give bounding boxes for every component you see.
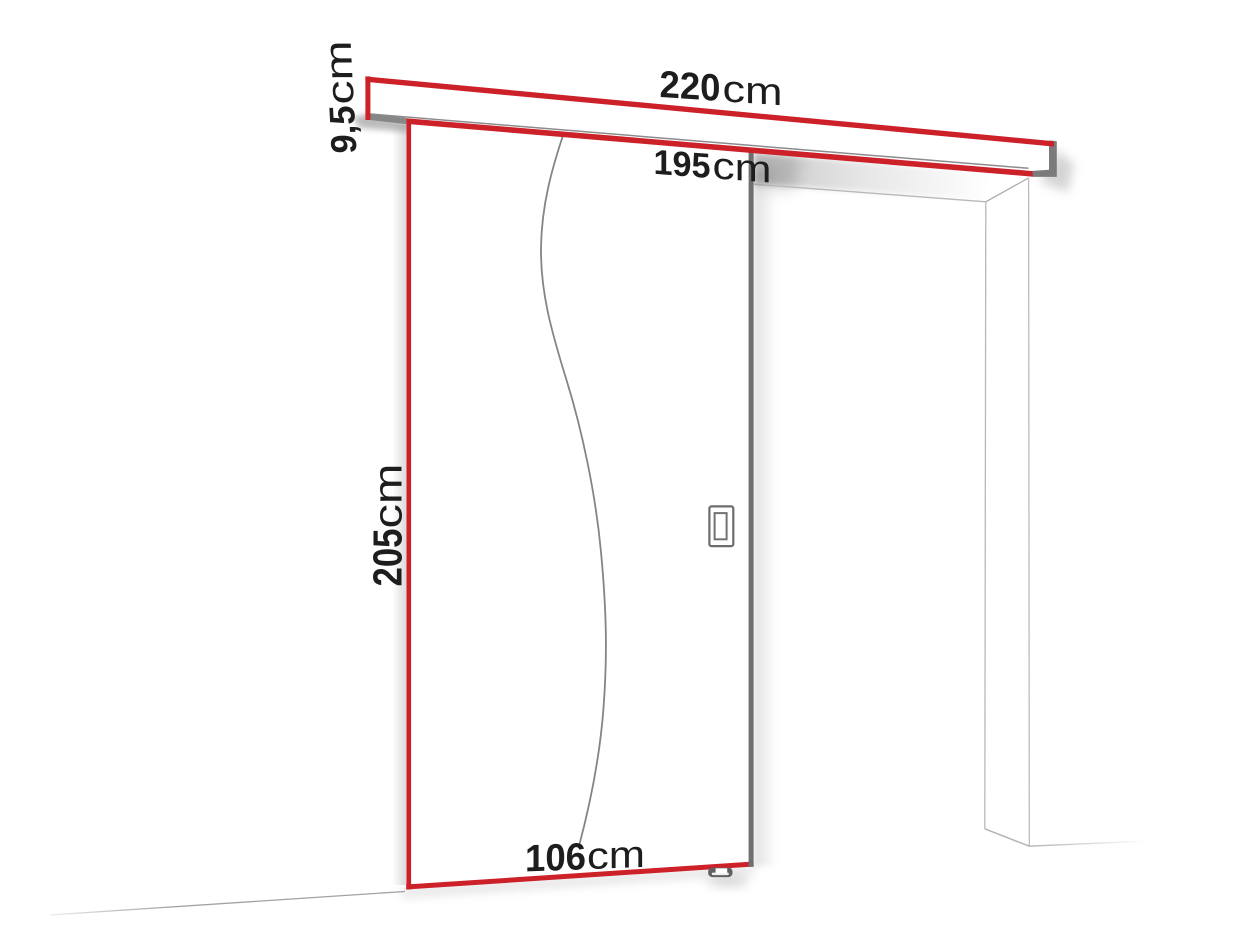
svg-text:cm: cm (723, 68, 783, 114)
svg-text:cm: cm (587, 834, 645, 878)
svg-text:195: 195 (654, 143, 711, 186)
svg-text:9,5: 9,5 (321, 106, 364, 154)
svg-text:220: 220 (660, 64, 721, 110)
svg-text:cm: cm (318, 41, 363, 105)
svg-text:106: 106 (525, 836, 586, 880)
svg-text:cm: cm (713, 145, 772, 191)
svg-text:205: 205 (365, 529, 411, 587)
svg-text:cm: cm (367, 464, 411, 529)
